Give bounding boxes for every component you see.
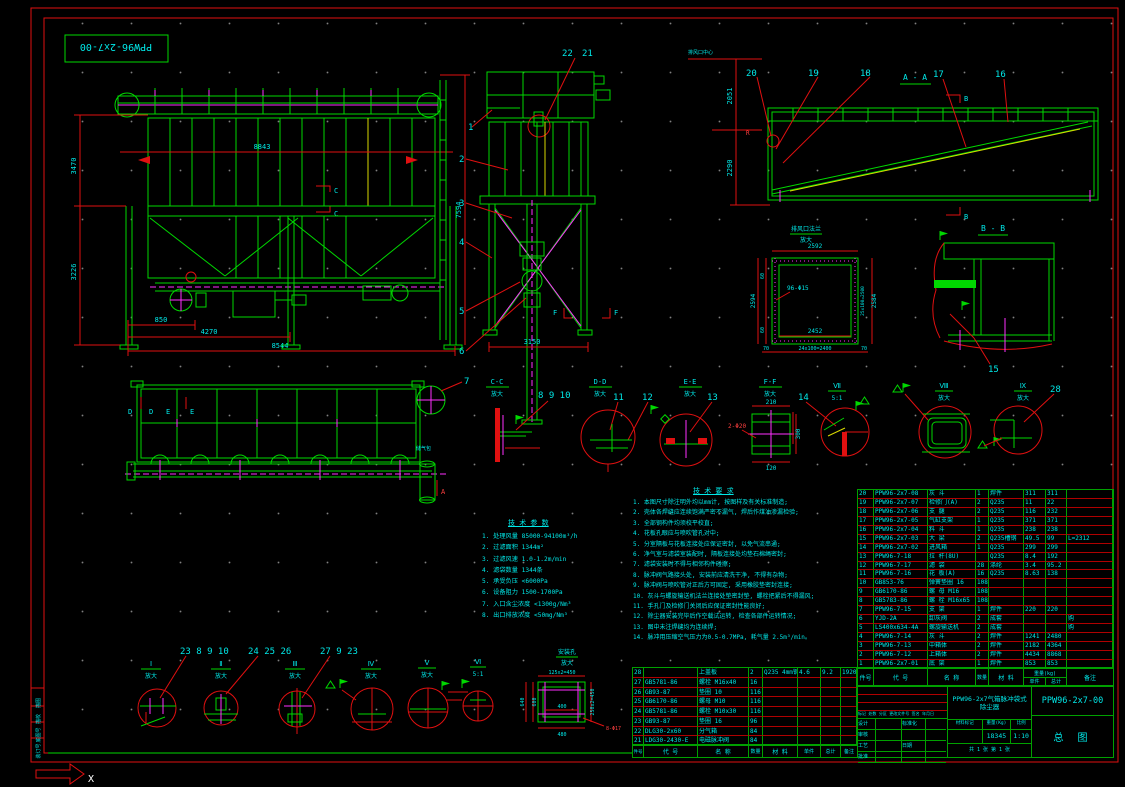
cell-remark: 购 [1067, 624, 1113, 633]
dim-label: 2051 [726, 88, 734, 105]
cell-material [989, 588, 1024, 597]
cell-qty: 84 [749, 727, 763, 737]
dim-label: 120 [766, 465, 777, 472]
cell-unit-weight: 8.4 [1024, 553, 1046, 562]
cell-qty: 1 [976, 517, 989, 526]
cell-remark [841, 678, 857, 688]
balloon-number: 15 [988, 365, 999, 375]
section-f-label: F [553, 309, 557, 317]
cell-name: 螺 栓 M16x65 [928, 597, 976, 606]
cell-name: 垫圈 16 [698, 717, 749, 727]
parts-row: 10 GB853-76 弹簧垫圈 16 108 [858, 579, 1113, 588]
dim-label: 850 [155, 316, 168, 324]
section-f-label: F [614, 309, 618, 317]
parts-row: 8 GB5783-86 螺 栓 M16x65 108 [858, 597, 1113, 606]
holes-note: 8-Φ17 [606, 726, 621, 732]
cell-code: PPW96-7-14 [874, 633, 928, 642]
balloon-number: 14 [798, 393, 809, 403]
sheet-count: 共 1 张 第 1 张 [948, 744, 1031, 757]
cell-qty: 2 [749, 668, 763, 678]
cell-name: 螺栓 M16x40 [698, 678, 749, 688]
cell-remark [1067, 526, 1113, 535]
header-remark: 备注 [1067, 669, 1113, 685]
tech-param-item: 1. 处理风量 85000-94100m³/h [482, 531, 632, 542]
role-value-2 [926, 741, 946, 752]
cell-remark [841, 717, 857, 727]
role-label-2: 标准化 [902, 719, 926, 730]
cell-remark [841, 727, 857, 737]
header-no: 件号 [858, 669, 874, 685]
cell-remark [1067, 651, 1113, 660]
balloon-number: 22 [562, 49, 573, 59]
side-elevation-view: 3150 F F 1 2 3 4 5 6 22 21 [459, 49, 618, 424]
tech-params-block: 技 术 参 数 1. 处理风量 85000-94100m³/h2. 过滤面积 1… [482, 518, 632, 621]
balloon-number: 4 [459, 238, 464, 248]
cell-total-weight [821, 697, 841, 707]
view-title: Ⅷ [939, 382, 948, 390]
cell-unit-weight [1024, 579, 1046, 588]
cell-code: PPW96-2x7-08 [874, 490, 928, 499]
cell-material: 焊件 [989, 633, 1024, 642]
cell-total-weight [821, 678, 841, 688]
cell-no: 7 [858, 606, 874, 615]
parts-row: 13 PPW96-7-18 拉 杆(8U) Q235 8.4 192 [858, 553, 1113, 562]
cell-remark [1067, 570, 1113, 579]
cell-no: 17 [858, 517, 874, 526]
cell-material [763, 678, 798, 688]
cell-qty: 2 [976, 499, 989, 508]
dim-label: 600 [532, 697, 538, 706]
parts-row: 3 PPW96-7-13 中箱体 2 焊件 2182 4364 [858, 642, 1113, 651]
cell-remark [1067, 597, 1113, 606]
section-b-label: B [964, 95, 968, 103]
cell-material [763, 707, 798, 717]
balloon-number: 5 [459, 307, 464, 317]
cell-total-weight: 4364 [1046, 642, 1067, 651]
cell-unit-weight: 11 [1024, 499, 1046, 508]
parts-row: 23 GB93-87 垫圈 16 96 [633, 717, 857, 727]
cell-material [763, 717, 798, 727]
cell-qty: 1 [976, 490, 989, 499]
cell-remark [1067, 579, 1113, 588]
balloon-number: 13 [707, 393, 718, 403]
view-title: Ⅶ [833, 382, 841, 390]
view-title: C-C [491, 378, 504, 386]
cell-total-weight: 311 [1046, 490, 1067, 499]
title-block: 标记 处数 分区 更改文件号 签名 年月日 设计 标准化 审核 工艺 日期 批准 [857, 686, 1114, 758]
parts-row: 28 上盖板 2 Q235 4mm钢板 4.6 9.2 1920x1100 [633, 668, 857, 678]
parts-row: 26 GB93-87 垫圈 10 116 [633, 688, 857, 698]
parts-row: 16 PPW96-2x7-04 料 斗 1 Q235 238 238 [858, 526, 1113, 535]
weight-value: 18345 [983, 730, 1012, 743]
role-value [876, 752, 902, 763]
cell-total-weight: 22 [1046, 499, 1067, 508]
cell-code: GB5781-86 [644, 678, 698, 688]
revision-header: 标记 处数 分区 更改文件号 签名 年月日 [858, 711, 947, 719]
cell-material [989, 579, 1024, 588]
bb-section-view: B - B 15 [933, 224, 1054, 375]
parts-row: 2 PPW96-7-12 上箱体 2 焊件 4434 8868 [858, 651, 1113, 660]
cell-total-weight: 192 [1046, 553, 1067, 562]
cell-unit-weight [1024, 588, 1046, 597]
balloon-number: 21 [582, 49, 593, 59]
view-subtitle: 放大 [938, 394, 950, 402]
material-label: 材料标记 [948, 720, 983, 729]
view-subtitle: 放大 [764, 390, 776, 398]
view-title: F-F [764, 378, 777, 386]
cell-no: 5 [858, 624, 874, 633]
cell-total-weight [1046, 615, 1067, 624]
cell-remark [1067, 562, 1113, 571]
role-label: 工艺 [858, 741, 876, 752]
balloon-numbers: 23 8 9 10 [180, 647, 229, 657]
cell-no: 12 [858, 562, 874, 571]
view-title: B - B [981, 224, 1005, 233]
cell-remark [1067, 508, 1113, 517]
cell-code: PPW96-2x7-02 [874, 544, 928, 553]
dim-label: 250x2=450 [590, 688, 596, 715]
cell-unit-weight: 311 [1024, 490, 1046, 499]
cell-remark [1067, 544, 1113, 553]
header-name: 名 称 [698, 746, 749, 757]
dim-label: 2592 [808, 243, 823, 250]
cell-no: 3 [858, 642, 874, 651]
cell-no: 22 [633, 727, 644, 737]
cell-no: 26 [633, 688, 644, 698]
drawing-number-rotated: PPW96-2x7-00 [80, 41, 152, 52]
parts-row: 17 PPW96-2x7-05 气缸支架 1 Q235 371 371 [858, 517, 1113, 526]
cell-total-weight: 2480 [1046, 633, 1067, 642]
view-subtitle: 放大 [289, 672, 301, 680]
tech-note-item: 5. 分室隔板与花板连接处应保证密封, 以免气流串通; [633, 540, 859, 550]
cell-total-weight: 95.2 [1046, 562, 1067, 571]
cell-name: 滤 袋 [928, 562, 976, 571]
cell-total-weight: 238 [1046, 526, 1067, 535]
cell-code: GB93-87 [644, 688, 698, 698]
cell-qty: 2 [976, 535, 989, 544]
section-d-label: D [128, 408, 132, 416]
tech-note-item: 1. 本图尺寸除注明外均以mm计, 按图样及有关标准制造; [633, 498, 859, 508]
parts-row: 7 PPW96-7-15 支 架 1 焊件 220 220 [858, 606, 1113, 615]
dim-label: 3226 [70, 264, 78, 281]
cell-no: 28 [633, 668, 644, 678]
cell-unit-weight: 8.63 [1024, 570, 1046, 579]
role-value-2 [926, 730, 946, 741]
header-total-weight: 总计 [821, 746, 841, 757]
cell-no: 19 [858, 499, 874, 508]
cell-no: 25 [633, 697, 644, 707]
tech-notes-title: 技 术 要 求 [693, 486, 859, 496]
cell-no: 6 [858, 615, 874, 624]
cell-qty: 2 [976, 651, 989, 660]
plan-view: D D E E 7 储气包 A [125, 377, 469, 503]
view-title: Ⅳ [368, 660, 375, 668]
cell-total-weight: 371 [1046, 517, 1067, 526]
cell-name: 大 梁 [928, 535, 976, 544]
cell-total-weight [1046, 597, 1067, 606]
view-subtitle: 放大 [594, 390, 606, 398]
cell-no: 15 [858, 535, 874, 544]
cell-unit-weight [798, 678, 821, 688]
cell-name: 灰 斗 [928, 490, 976, 499]
cell-qty [976, 553, 989, 562]
cell-code: GB853-76 [874, 579, 928, 588]
section-e-label: E [190, 408, 194, 416]
cell-total-weight [821, 707, 841, 717]
cell-total-weight [1046, 624, 1067, 633]
view-title: A - A [903, 73, 927, 82]
parts-row: 24 GB5781-86 螺栓 M10x30 116 [633, 707, 857, 717]
cell-name: 上箱体 [928, 651, 976, 660]
cell-code: PPW96-2x7-06 [874, 508, 928, 517]
cell-unit-weight: 116 [1024, 508, 1046, 517]
cell-code: LS400x634-4A [874, 624, 928, 633]
tech-param-item: 2. 过滤面积 1344m² [482, 542, 632, 553]
parts-row: 6 YJD-2A 卸灰阀 2 成套 购 [858, 615, 1113, 624]
cell-qty: 1 [976, 526, 989, 535]
cell-name: 料 斗 [928, 526, 976, 535]
cell-name: 气缸支架 [928, 517, 976, 526]
parts-list-aux: 28 上盖板 2 Q235 4mm钢板 4.6 9.2 1920x1100 27… [632, 667, 858, 745]
cell-code: PPW96-7-15 [874, 606, 928, 615]
dim-label: 2452 [808, 328, 823, 335]
cell-material: 焊件 [989, 651, 1024, 660]
title-block-revisions: 标记 处数 分区 更改文件号 签名 年月日 设计 标准化 审核 工艺 日期 批准 [858, 687, 948, 757]
dim-label: 210 [766, 399, 777, 406]
balloon-number: 1 [468, 123, 473, 133]
cell-name: 螺母 M10 [698, 697, 749, 707]
view-title: E-E [684, 378, 697, 386]
header-no: 件号 [633, 746, 644, 757]
cell-name: 灰 斗 [928, 633, 976, 642]
cell-material: 焊件 [989, 490, 1024, 499]
dim-label: 400 [557, 704, 566, 710]
section-c-label: C [334, 210, 338, 218]
cell-remark [1067, 606, 1113, 615]
header-total-weight: 总计 [1046, 678, 1066, 685]
cell-material: Q235 [989, 508, 1024, 517]
cell-no: 18 [858, 508, 874, 517]
view-subtitle: 放大 [491, 390, 503, 398]
dim-label: 8544 [272, 342, 289, 350]
cell-material [989, 597, 1024, 606]
cell-material: Q235 [989, 499, 1024, 508]
cell-code: PPW96-7-18 [874, 553, 928, 562]
view-subtitle: 放大 [684, 390, 696, 398]
tech-note-item: 3. 全部钢构件均须校平校直; [633, 519, 859, 529]
view-title: Ⅱ [219, 660, 222, 668]
cell-remark [841, 707, 857, 717]
strip-cell-label: 描图 [35, 698, 42, 708]
view-title: 排风口法兰 [791, 225, 821, 233]
cell-no: 9 [858, 588, 874, 597]
tech-param-item: 7. 入口含尘浓度 <1300g/Nm³ [482, 599, 632, 610]
cell-total-weight [821, 688, 841, 698]
parts-row: 11 PPW96-7-16 花 板(A) 16 Q235 8.63 138 [858, 570, 1113, 579]
dim-label: 25x100=2500 [860, 286, 866, 316]
cell-qty: 116 [749, 697, 763, 707]
parts-row: 5 LS400x634-4A 螺旋输送机 2 成套 购 [858, 624, 1113, 633]
cell-total-weight [1046, 588, 1067, 597]
cell-total-weight: 9.2 [821, 668, 841, 678]
tech-note-item: 2. 壳体各焊缝应连续饱满严密不漏气, 焊后作煤油渗漏检验; [633, 508, 859, 518]
cell-unit-weight: 4.6 [798, 668, 821, 678]
role-value [876, 730, 902, 741]
parts-row: 22 DLG30-2x60 分气箱 84 [633, 727, 857, 737]
parts-row: 20 PPW96-2x7-08 灰 斗 1 焊件 311 311 [858, 490, 1113, 499]
cell-qty: 2 [976, 508, 989, 517]
role-label: 批准 [858, 752, 876, 763]
section-e-label: E [166, 408, 170, 416]
tech-param-item: 5. 承受负压 <6000Pa [482, 576, 632, 587]
cell-unit-weight [798, 717, 821, 727]
cell-code: PPW96-2x7-04 [874, 526, 928, 535]
cell-code: PPW96-2x7-07 [874, 499, 928, 508]
role-row: 工艺 日期 [858, 741, 947, 752]
cell-no: 14 [858, 544, 874, 553]
tech-note-item: 8. 脉冲阀气路接头处, 安装前应清洗干净, 不得有杂物; [633, 571, 859, 581]
dim-label: 70 [763, 346, 769, 352]
balloon-number: 17 [933, 70, 944, 80]
cell-qty: 116 [749, 707, 763, 717]
dim-label: 3150 [524, 338, 541, 346]
cell-name: 螺栓 M10x30 [698, 707, 749, 717]
cell-total-weight: 220 [1046, 606, 1067, 615]
cell-no: 11 [858, 570, 874, 579]
dim-label: 8843 [254, 143, 271, 151]
cell-qty: 108 [976, 579, 989, 588]
parts-row: 4 PPW96-7-14 灰 斗 2 焊件 1241 2480 [858, 633, 1113, 642]
cell-remark [841, 688, 857, 698]
parts-row: 25 GB6170-86 螺母 M10 116 [633, 697, 857, 707]
strip-cell-label: 描校 [35, 714, 42, 724]
cell-no: 2 [858, 651, 874, 660]
tank-label: 储气包 [416, 445, 431, 452]
dim-label: 24x100=2400 [798, 346, 831, 352]
cell-name: 螺 母 M16 [928, 588, 976, 597]
cell-unit-weight: 299 [1024, 544, 1046, 553]
cell-unit-weight: 220 [1024, 606, 1046, 615]
cell-remark: 1920x1100 [841, 668, 857, 678]
dim-label: 2290 [726, 160, 734, 177]
title-block-middle: PPW96-2x7气箱脉冲袋式除尘器 材料标记 重量(Kg) 比例 18345 … [948, 687, 1032, 757]
cell-qty: 2 [976, 642, 989, 651]
header-unit-weight: 单件 [798, 746, 821, 757]
role-row: 批准 [858, 752, 947, 763]
view-title: Ⅸ [1020, 382, 1027, 390]
cell-material: 焊件 [989, 642, 1024, 651]
view-subtitle: 放大 [145, 672, 157, 680]
dim-label: 640 [520, 697, 526, 706]
header-qty: 数量 [976, 669, 989, 685]
cell-total-weight: 138 [1046, 570, 1067, 579]
cell-no: 27 [633, 678, 644, 688]
front-elevation-view: 8843 C C [70, 75, 470, 356]
balloon-numbers: 24 25 26 [248, 647, 291, 657]
drawing-type: 总 图 [1032, 716, 1113, 757]
cell-unit-weight [798, 727, 821, 737]
tech-note-item: 10. 灰斗与螺旋输送机法兰连接处垫密封垫, 螺栓把紧后不得漏风; [633, 592, 859, 602]
role-rows: 设计 标准化 审核 工艺 日期 批准 [858, 719, 947, 763]
cell-material [763, 727, 798, 737]
cell-unit-weight: 4434 [1024, 651, 1046, 660]
cell-name: 花 板(A) [928, 570, 976, 579]
cell-code: GB5781-86 [644, 707, 698, 717]
cell-no: 13 [858, 553, 874, 562]
parts-row: 9 GB6170-86 螺 母 M16 108 [858, 588, 1113, 597]
title-block-right: PPW96-2x7-00 总 图 [1032, 687, 1113, 757]
cell-name: 上盖板 [698, 668, 749, 678]
cell-remark [1067, 588, 1113, 597]
balloon-number: 2 [459, 155, 464, 165]
cell-unit-weight [1024, 597, 1046, 606]
strip-cell-label: 装订号 [35, 743, 42, 758]
strip-cell-label: 底图号 [35, 727, 42, 742]
cell-no: 20 [858, 490, 874, 499]
aa-section-view: A - A 2051 2290 排风口中心 R B B [688, 49, 1098, 221]
scale-label: 比例 [1011, 720, 1031, 729]
cell-code: GB6170-86 [874, 588, 928, 597]
dim-label: 4270 [201, 328, 218, 336]
cell-qty: 1 [976, 606, 989, 615]
cell-code: YJD-2A [874, 615, 928, 624]
cell-remark [1067, 642, 1113, 651]
cell-remark: L=2312 [1067, 535, 1113, 544]
tech-notes-list: 1. 本图尺寸除注明外均以mm计, 按图样及有关标准制造;2. 壳体各焊缝应连续… [633, 498, 859, 644]
header-qty: 数量 [749, 746, 763, 757]
flange-detail-view: 排风口法兰 放大 2592 2594 60 60 2584 25x100=250… [750, 225, 878, 352]
cell-remark [1067, 517, 1113, 526]
role-label: 设计 [858, 719, 876, 730]
cell-unit-weight: 49.5 [1024, 535, 1046, 544]
cell-material: 涤纶 [989, 562, 1024, 571]
cell-material: Q235 [989, 526, 1024, 535]
cell-remark [1067, 499, 1113, 508]
cell-qty: 108 [976, 588, 989, 597]
tech-note-item: 6. 净气室与滤袋室装配时, 隔板连接处均垫石棉绳密封; [633, 550, 859, 560]
section-d-label: D [149, 408, 153, 416]
header-remark: 备注 [841, 746, 857, 757]
cell-code: PPW96-7-12 [874, 651, 928, 660]
dim-label: 2584 [871, 293, 878, 308]
balloon-numbers: 8 9 10 [538, 391, 571, 401]
role-label-2 [902, 730, 926, 741]
cell-total-weight: 232 [1046, 508, 1067, 517]
view-subtitle: 5:1 [473, 671, 484, 678]
cell-name: 中箱体 [928, 642, 976, 651]
cell-material: 成套 [989, 615, 1024, 624]
cell-unit-weight: 371 [1024, 517, 1046, 526]
role-label-2: 日期 [902, 741, 926, 752]
view-subtitle: 放大 [215, 672, 227, 680]
dim-label: 300 [795, 428, 802, 439]
parts-row: 27 GB5781-86 螺栓 M16x40 16 [633, 678, 857, 688]
balloon-number: 11 [613, 393, 624, 403]
balloon-number: 3 [459, 199, 464, 209]
cell-no: 23 [633, 717, 644, 727]
cell-no: 24 [633, 707, 644, 717]
cell-qty: 108 [976, 597, 989, 606]
dim-label: 70 [861, 346, 867, 352]
cell-material: 成套 [989, 624, 1024, 633]
section-c-label: C [334, 187, 338, 195]
parts-row: 14 PPW96-2x7-02 进风箱 1 Q235 299 299 [858, 544, 1113, 553]
cell-unit-weight [1024, 615, 1046, 624]
tech-params-title: 技 术 参 数 [508, 518, 632, 528]
balloon-number: 7 [464, 377, 469, 387]
section-a-label: A [441, 488, 446, 496]
tech-note-item: 12. 除尘器安装完毕后作空载试运转, 检查各部件运转情况; [633, 612, 859, 622]
